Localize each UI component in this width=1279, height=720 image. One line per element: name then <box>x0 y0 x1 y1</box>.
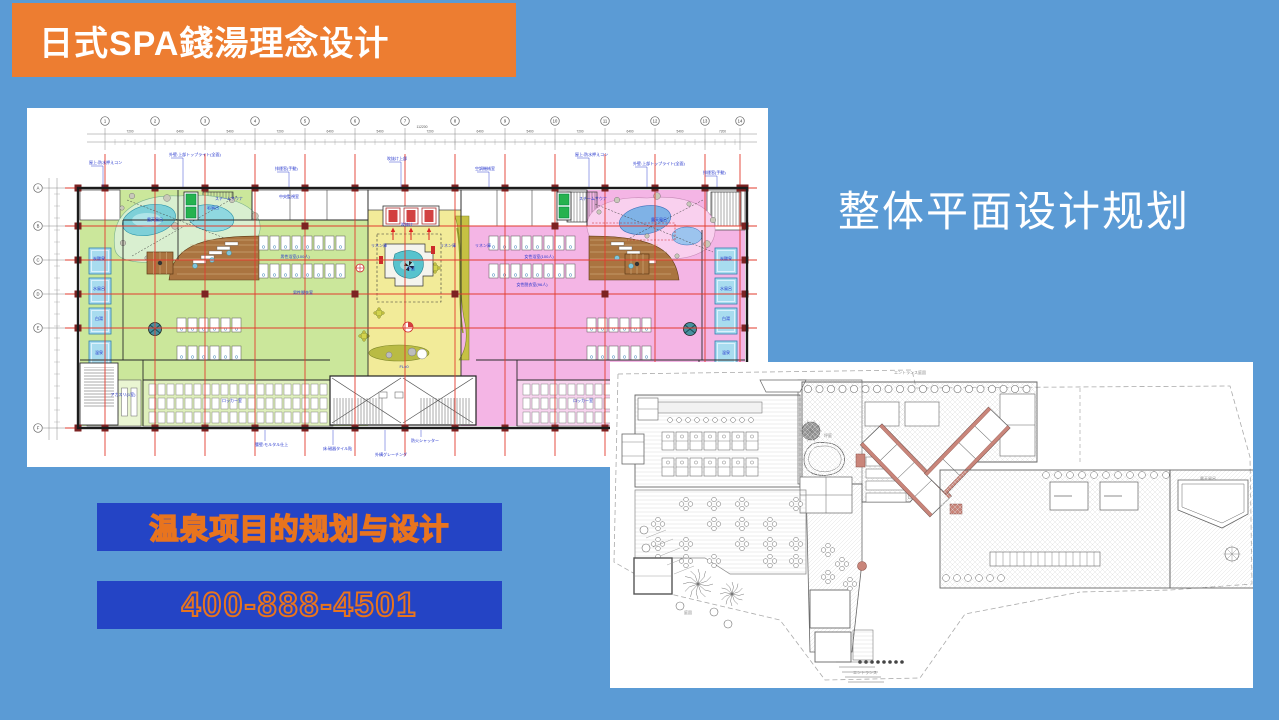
svg-text:7200: 7200 <box>576 130 583 134</box>
slide-title-bar: 日式SPA錢湯理念设计 <box>12 3 516 77</box>
svg-text:女性浴室(100人): 女性浴室(100人) <box>524 253 554 259</box>
svg-text:温泉: 温泉 <box>722 349 730 355</box>
svg-text:5400: 5400 <box>526 130 533 134</box>
svg-text:D: D <box>36 292 39 297</box>
svg-text:吹抜け: 吹抜け <box>401 221 413 227</box>
site-plan-card: エントランス庭園坪庭露天風呂庭園エントランス <box>610 362 1253 688</box>
section-title: 整体平面设计规划 <box>798 178 1230 239</box>
svg-text:排煙窓(手動): 排煙窓(手動) <box>275 165 298 171</box>
svg-text:6400: 6400 <box>176 130 183 134</box>
svg-text:FL±0: FL±0 <box>399 364 409 369</box>
svg-text:温泉: 温泉 <box>95 349 103 355</box>
svg-text:B: B <box>37 224 40 229</box>
svg-text:10: 10 <box>553 119 558 124</box>
svg-text:7200: 7200 <box>426 130 433 134</box>
svg-text:エントランス: エントランス <box>853 669 877 675</box>
phone-banner: 400-888-4501 <box>97 581 502 629</box>
svg-text:外壁:上部トップライト(全面): 外壁:上部トップライト(全面) <box>633 160 685 166</box>
svg-text:リネン庫: リネン庫 <box>475 242 491 248</box>
svg-text:5400: 5400 <box>676 130 683 134</box>
svg-text:A: A <box>37 186 40 191</box>
svg-text:6400: 6400 <box>626 130 633 134</box>
svg-text:屋上:防水押えコン: 屋上:防水押えコン <box>89 159 122 165</box>
svg-text:ロッカー室: ロッカー室 <box>222 397 242 403</box>
svg-text:坪庭: 坪庭 <box>824 432 832 438</box>
svg-text:7200: 7200 <box>719 130 726 134</box>
svg-text:白湯: 白湯 <box>95 315 103 321</box>
svg-text:岩風呂: 岩風呂 <box>207 204 219 210</box>
svg-text:露天風呂: 露天風呂 <box>651 217 667 222</box>
svg-text:炭酸泉: 炭酸泉 <box>93 255 105 261</box>
svg-text:男性浴室(100人): 男性浴室(100人) <box>280 253 310 259</box>
svg-text:白湯: 白湯 <box>722 315 730 321</box>
svg-text:炭酸泉: 炭酸泉 <box>720 255 732 261</box>
slide-canvas: 日式SPA錢湯理念设计 1234567891011121314720064005… <box>0 0 1279 720</box>
svg-text:ロッカー室: ロッカー室 <box>573 397 593 403</box>
svg-text:腰壁:モルタル仕上: 腰壁:モルタル仕上 <box>255 441 288 447</box>
svg-text:12: 12 <box>653 119 658 124</box>
svg-text:リネン庫: リネン庫 <box>440 242 456 248</box>
svg-text:床:磁器タイル貼: 床:磁器タイル貼 <box>323 445 352 451</box>
svg-text:14: 14 <box>738 119 743 124</box>
svg-text:F: F <box>37 426 40 431</box>
svg-text:6400: 6400 <box>476 130 483 134</box>
site-plan-drawing: エントランス庭園坪庭露天風呂庭園エントランス <box>610 362 1253 688</box>
svg-text:スチームサウナ: スチームサウナ <box>579 195 607 201</box>
svg-text:外構グレーチング: 外構グレーチング <box>375 451 407 457</box>
svg-text:吹抜け上部: 吹抜け上部 <box>387 155 407 161</box>
svg-text:6400: 6400 <box>326 130 333 134</box>
svg-text:11: 11 <box>603 119 608 124</box>
svg-text:水風呂: 水風呂 <box>720 285 732 291</box>
svg-text:リネン庫: リネン庫 <box>371 242 387 248</box>
svg-text:スチームサウナ: スチームサウナ <box>215 195 243 201</box>
svg-text:排煙窓(手動): 排煙窓(手動) <box>703 169 726 175</box>
svg-text:水風呂: 水風呂 <box>93 285 105 291</box>
svg-text:防火シャッター: 防火シャッター <box>411 437 439 443</box>
project-banner-text: 温泉项目的规划与设计 <box>149 506 449 548</box>
svg-text:屋上:防水押えコン: 屋上:防水押えコン <box>575 151 608 157</box>
project-banner: 温泉项目的规划与设计 <box>97 503 502 551</box>
svg-text:露天風呂: 露天風呂 <box>147 217 163 222</box>
phone-number: 400-888-4501 <box>182 586 418 625</box>
svg-text:5400: 5400 <box>376 130 383 134</box>
svg-text:女性脱衣室(96人): 女性脱衣室(96人) <box>516 281 548 287</box>
svg-text:7200: 7200 <box>276 130 283 134</box>
svg-text:中央監視室: 中央監視室 <box>279 193 299 199</box>
svg-text:C: C <box>36 258 39 263</box>
svg-text:E: E <box>37 326 40 331</box>
svg-text:112200: 112200 <box>416 125 427 129</box>
svg-text:露天風呂: 露天風呂 <box>1200 476 1216 481</box>
svg-text:坪庭: 坪庭 <box>407 265 415 271</box>
svg-text:男性脱衣室: 男性脱衣室 <box>293 289 313 295</box>
slide-title: 日式SPA錢湯理念设计 <box>39 16 389 65</box>
svg-text:アカスリ(1室): アカスリ(1室) <box>111 391 137 397</box>
svg-text:5400: 5400 <box>226 130 233 134</box>
svg-text:エントランス庭園: エントランス庭園 <box>894 369 926 375</box>
svg-text:庭園: 庭園 <box>684 609 692 615</box>
svg-text:7200: 7200 <box>126 130 133 134</box>
svg-text:外壁:上部トップライト(全面): 外壁:上部トップライト(全面) <box>169 151 221 157</box>
svg-text:13: 13 <box>703 119 708 124</box>
svg-text:空調機械室: 空調機械室 <box>475 165 495 171</box>
